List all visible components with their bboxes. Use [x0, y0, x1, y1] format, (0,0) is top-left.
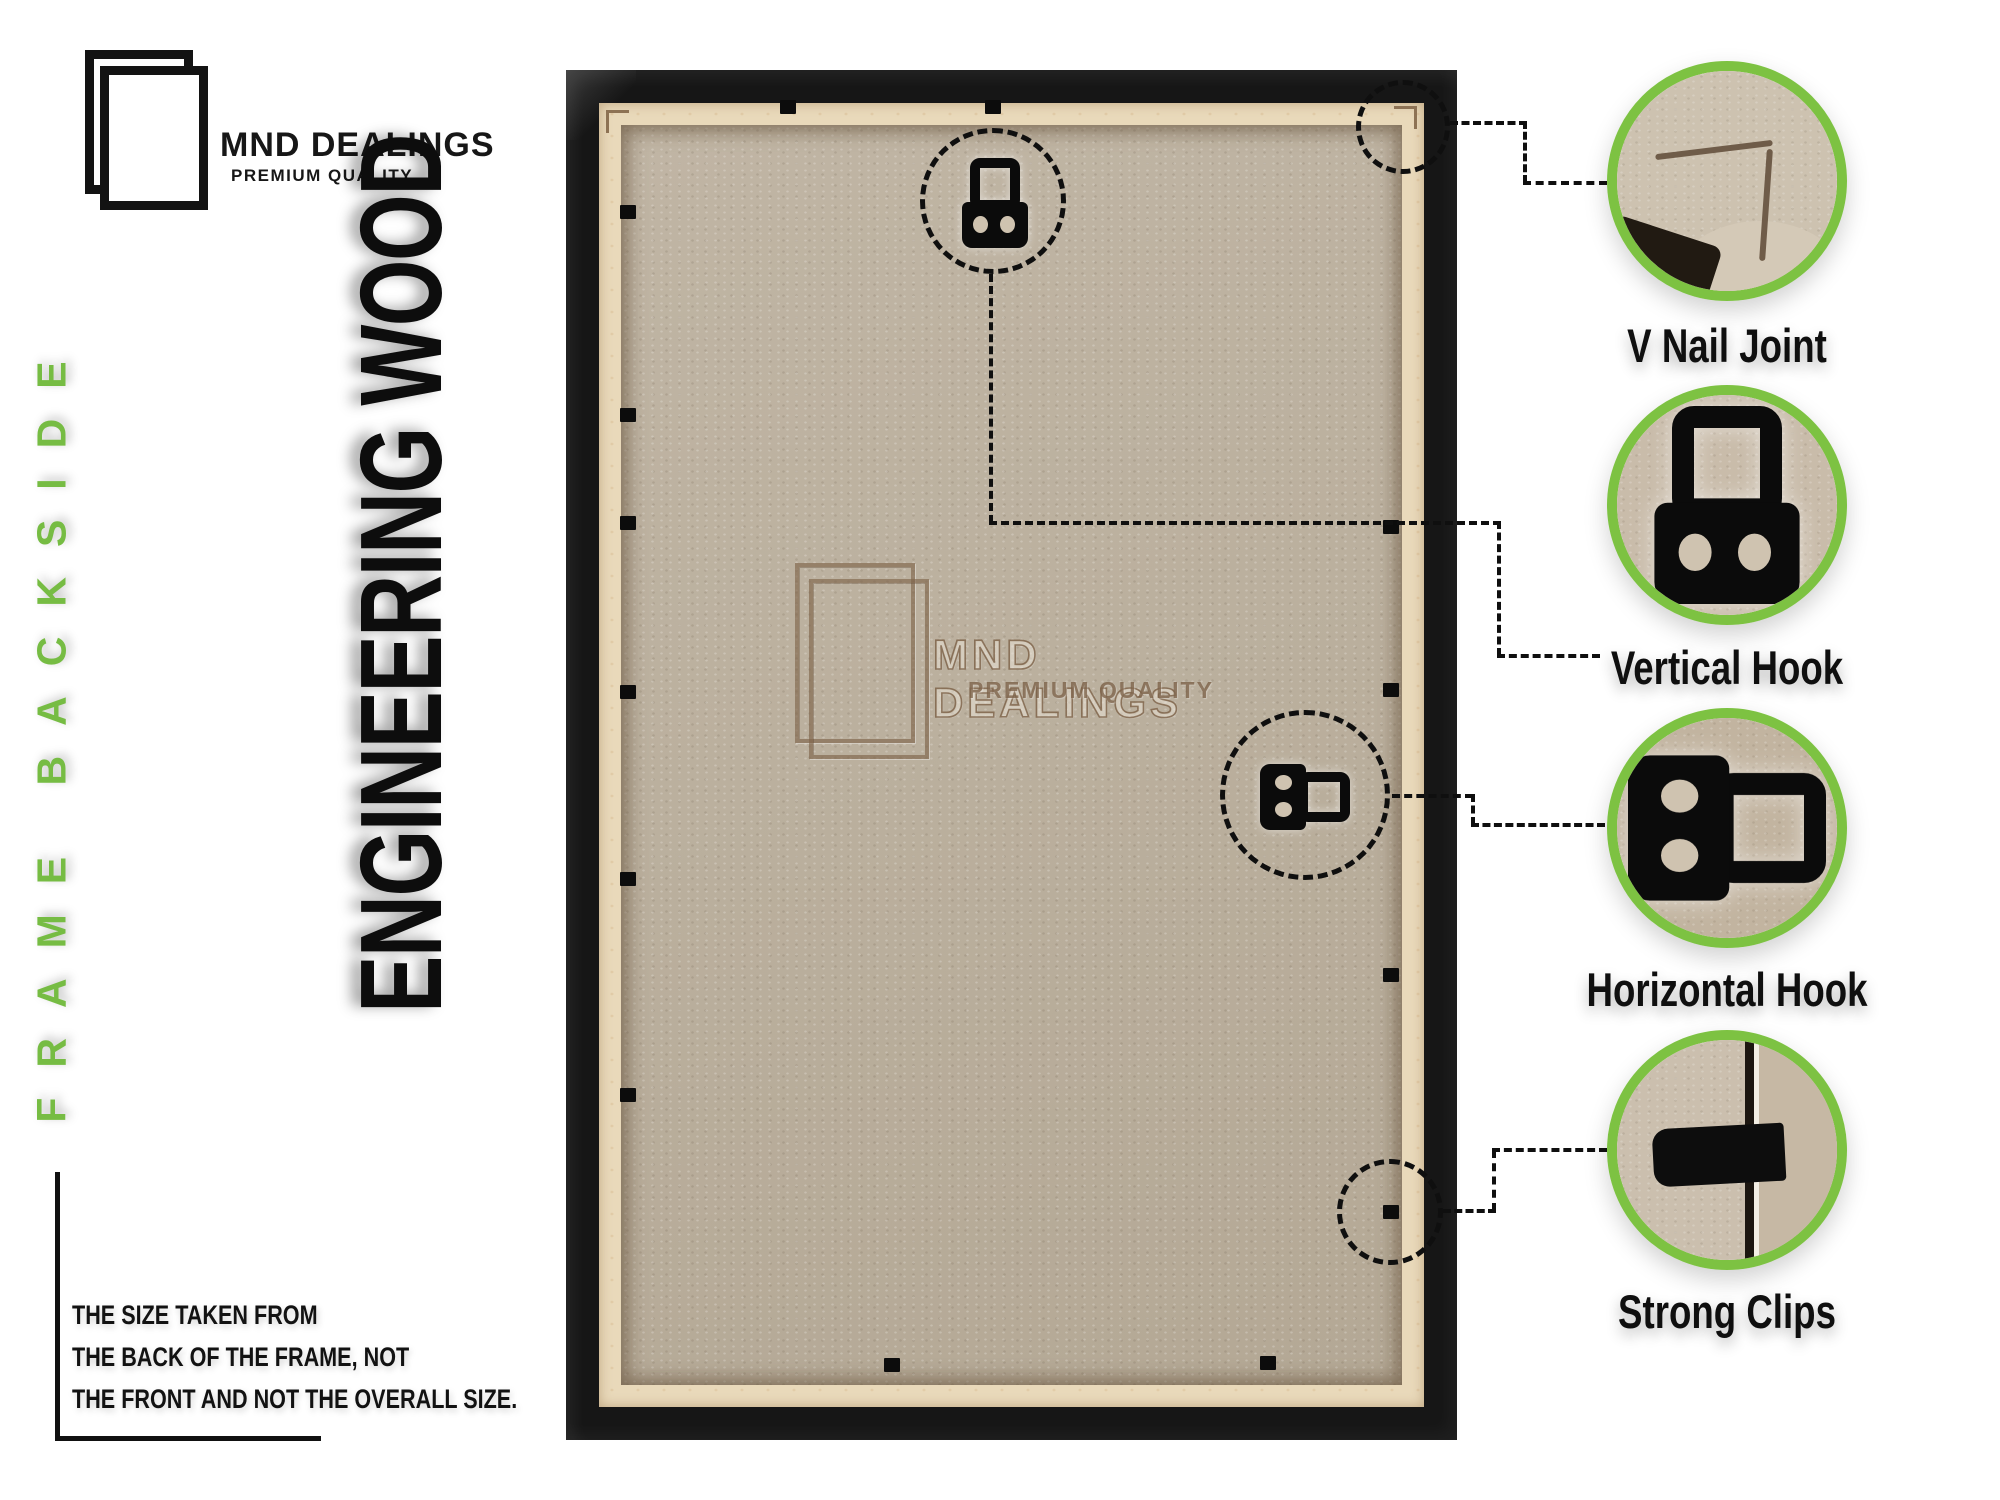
strong-clips-photo: [1617, 1040, 1837, 1260]
size-note-text-3: THE FRONT AND NOT THE OVERALL SIZE.: [72, 1384, 517, 1415]
callout-label-strong-clips: Strong Clips: [1587, 1284, 1866, 1339]
hook-hole: [1661, 780, 1698, 813]
callout-circle-strong-clips: [1607, 1030, 1847, 1270]
frame-clip: [620, 872, 636, 886]
engineering-wood-label: ENGINEERING WOOD: [334, 135, 468, 1013]
horizontal-hook-photo: [1617, 718, 1837, 938]
frame-clip: [1383, 968, 1399, 982]
callout-text-horizontal-hook: Horizontal Hook: [1586, 962, 1867, 1017]
frame-clip: [1383, 683, 1399, 697]
hook-plate: [1628, 755, 1729, 900]
vertical-hook-icon: [1654, 406, 1799, 604]
watermark-group: MND DEALINGS PREMIUM QUALITY: [795, 563, 1235, 763]
hook-plate: [1654, 503, 1799, 604]
vnail-groove-horizontal: [1655, 140, 1773, 160]
vertical-hook-photo: [1617, 395, 1837, 615]
watermark-logo-front-icon: [809, 579, 929, 759]
frame-backside-label: FRAME BACKSIDE: [29, 331, 76, 1122]
callout-label-horizontal-hook: Horizontal Hook: [1547, 962, 1907, 1017]
frame-clip: [1260, 1356, 1276, 1370]
connector-hhook-1: [1392, 794, 1473, 798]
hook-hole: [1679, 534, 1712, 571]
callout-text-vertical-hook: Vertical Hook: [1611, 640, 1843, 695]
dashed-circle-corner-joint: [1356, 80, 1450, 174]
connector-vnail-3: [1523, 181, 1607, 185]
frame-clip: [884, 1358, 900, 1372]
frame-clip: [985, 100, 1001, 114]
note-bracket-horizontal-line: [55, 1436, 321, 1441]
connector-hhook-2: [1471, 794, 1475, 825]
callout-circle-vertical-hook: [1607, 385, 1847, 625]
frame-clip: [620, 408, 636, 422]
connector-vnail-1: [1450, 121, 1527, 125]
hook-hole: [1738, 534, 1771, 571]
size-note-line-2: THE BACK OF THE FRAME, NOT: [72, 1342, 493, 1373]
strong-clip-icon: [1652, 1123, 1787, 1188]
dashed-circle-vertical-hook: [920, 128, 1066, 274]
connector-clip-3: [1492, 1148, 1607, 1152]
product-infographic: MND DEALINGS PREMIUM QUALITY FRAME BACKS…: [0, 0, 2000, 1500]
frame-clip: [620, 685, 636, 699]
watermark-tagline: PREMIUM QUALITY: [968, 677, 1214, 704]
frame-clip: [780, 100, 796, 114]
size-note-line-1: THE SIZE TAKEN FROM: [72, 1300, 379, 1331]
connector-hhook-3: [1471, 823, 1605, 827]
callout-circle-v-nail-joint: [1607, 61, 1847, 301]
size-note-text-1: THE SIZE TAKEN FROM: [72, 1300, 318, 1331]
frame-clip: [620, 1088, 636, 1102]
size-note-text-2: THE BACK OF THE FRAME, NOT: [72, 1342, 409, 1373]
dashed-circle-horizontal-hook: [1220, 710, 1390, 880]
connector-vhook-1: [989, 274, 993, 523]
dashed-circle-clip: [1337, 1159, 1443, 1265]
size-note-line-3: THE FRONT AND NOT THE OVERALL SIZE.: [72, 1384, 629, 1415]
note-bracket-vertical-line: [55, 1172, 60, 1440]
brand-logo-frame-front-icon: [100, 66, 208, 210]
callout-text-v-nail-joint: V Nail Joint: [1627, 318, 1827, 373]
vnail-photo: [1617, 71, 1837, 291]
connector-clip-2: [1492, 1150, 1496, 1211]
corner-shadow: [1607, 214, 1723, 301]
callout-text-strong-clips: Strong Clips: [1618, 1284, 1836, 1339]
vnail-corner-mark-topleft-icon: [606, 110, 629, 133]
frame-clip: [620, 205, 636, 219]
hook-hole: [1661, 839, 1698, 872]
connector-clip-1: [1443, 1209, 1496, 1213]
callout-label-v-nail-joint: V Nail Joint: [1599, 318, 1855, 373]
connector-vnail-2: [1523, 121, 1527, 183]
horizontal-hook-icon: [1628, 755, 1826, 900]
connector-vhook-2: [989, 521, 1501, 525]
callout-circle-horizontal-hook: [1607, 708, 1847, 948]
frame-clip: [620, 516, 636, 530]
connector-vhook-3: [1497, 521, 1501, 656]
callout-label-vertical-hook: Vertical Hook: [1578, 640, 1876, 695]
